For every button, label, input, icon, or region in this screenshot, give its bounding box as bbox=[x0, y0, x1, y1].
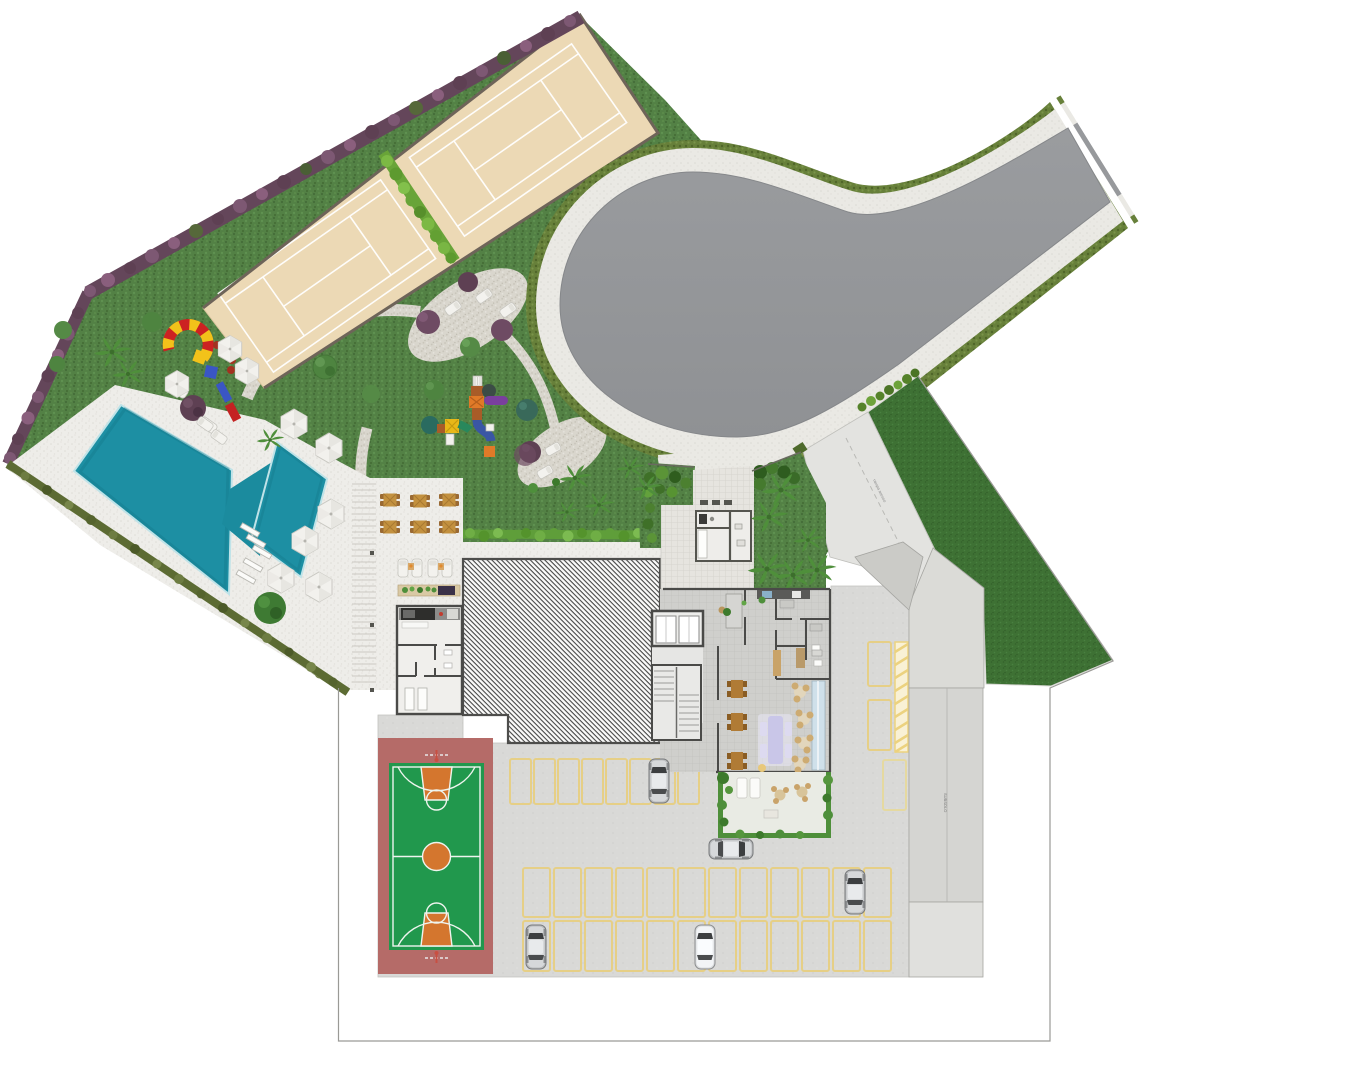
svg-text:SUBSOLO: SUBSOLO bbox=[943, 793, 948, 812]
